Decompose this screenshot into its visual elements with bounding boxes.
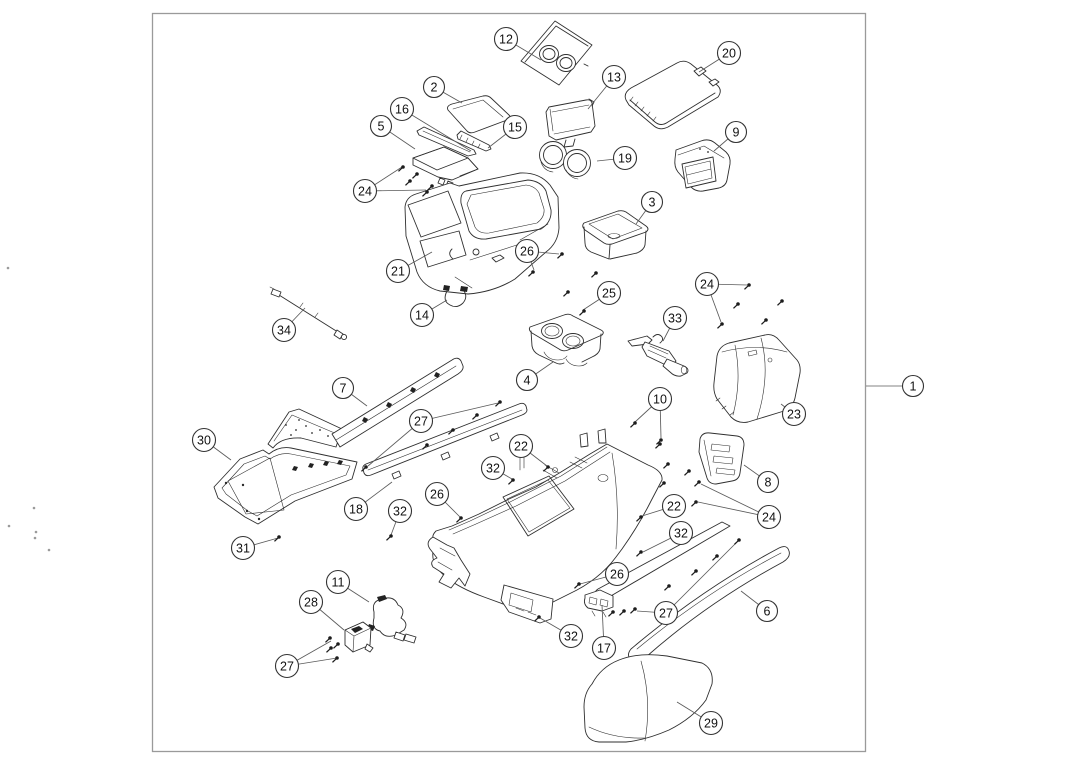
callout-28: 28: [300, 591, 323, 614]
scan-speck: [7, 267, 10, 270]
callout-22: 22: [663, 495, 686, 518]
svg-text:25: 25: [602, 287, 616, 301]
screw-icon: [718, 322, 724, 328]
callout-32: 32: [482, 457, 505, 480]
svg-text:5: 5: [378, 120, 385, 134]
callout-27: 27: [276, 655, 299, 678]
svg-text:12: 12: [499, 33, 513, 47]
screw-icon: [509, 478, 515, 484]
screw-icon: [685, 469, 691, 475]
callout-26: 26: [606, 563, 629, 586]
part-8-bracket: [699, 433, 744, 484]
callout-33: 33: [664, 307, 687, 330]
callout-22: 22: [510, 435, 533, 458]
svg-text:24: 24: [762, 511, 776, 525]
callout-25: 25: [598, 282, 621, 305]
callout-32: 32: [670, 522, 693, 545]
screw-icon: [745, 283, 751, 289]
screw-icon: [558, 252, 564, 258]
svg-text:24: 24: [358, 185, 372, 199]
part-3-storage-bin: [583, 211, 648, 259]
svg-text:27: 27: [280, 660, 294, 674]
screw-icon: [665, 584, 671, 590]
svg-text:19: 19: [618, 152, 632, 166]
svg-text:6: 6: [764, 605, 771, 619]
screw-icon: [735, 538, 741, 544]
screw-icon: [778, 299, 784, 305]
svg-text:16: 16: [395, 103, 409, 117]
screw-icon: [631, 421, 637, 427]
svg-text:22: 22: [667, 500, 681, 514]
screw-icon: [275, 535, 281, 541]
part-13-module: [546, 99, 595, 147]
screw-icon: [473, 413, 479, 419]
screw-icon: [620, 609, 626, 615]
svg-text:3: 3: [649, 196, 656, 210]
svg-text:8: 8: [765, 476, 772, 490]
screw-icon: [580, 309, 586, 315]
callout-18: 18: [345, 498, 368, 521]
svg-text:32: 32: [393, 505, 407, 519]
svg-text:34: 34: [277, 324, 291, 338]
svg-text:32: 32: [486, 462, 500, 476]
callout-1: 1: [903, 376, 924, 397]
screw-icon: [664, 462, 670, 468]
svg-text:9: 9: [733, 126, 740, 140]
callout-5: 5: [371, 116, 392, 137]
callout-9: 9: [726, 122, 747, 143]
callout-27: 27: [410, 410, 433, 433]
callout-12: 12: [495, 28, 518, 51]
part-11-wiring-harness: [367, 595, 416, 643]
callout-17: 17: [593, 637, 616, 660]
svg-text:14: 14: [415, 309, 429, 323]
svg-text:13: 13: [607, 71, 621, 85]
scan-artifacts: [7, 267, 51, 552]
svg-text:18: 18: [349, 503, 363, 517]
callout-34: 34: [273, 319, 296, 342]
callout-19: 19: [614, 147, 637, 170]
svg-text:17: 17: [597, 642, 611, 656]
callout-26: 26: [426, 483, 449, 506]
callout-4: 4: [517, 370, 538, 391]
diagram-canvas: 1221320165159192432621142533243474102327…: [0, 0, 1080, 764]
svg-text:10: 10: [653, 393, 667, 407]
svg-text:26: 26: [430, 488, 444, 502]
part-33-latch-mechanism: [628, 335, 688, 377]
screw-icon: [406, 179, 412, 185]
screw-icon: [713, 554, 719, 560]
callout-3: 3: [642, 192, 663, 213]
screw-icon: [734, 302, 740, 308]
part-9-rear-vent-trim: [675, 140, 730, 191]
svg-text:32: 32: [674, 527, 688, 541]
part-2-pad: [448, 96, 511, 133]
scan-speck: [34, 537, 37, 540]
callout-10: 10: [649, 388, 672, 411]
screw-icon: [544, 465, 550, 471]
svg-text:28: 28: [304, 596, 318, 610]
exploded-diagram: 1221320165159192432621142533243474102327…: [0, 0, 1080, 764]
svg-text:26: 26: [610, 568, 624, 582]
callout-32: 32: [560, 625, 583, 648]
scan-speck: [8, 525, 11, 528]
callout-16: 16: [391, 98, 414, 121]
svg-text:30: 30: [197, 434, 211, 448]
svg-text:15: 15: [508, 121, 522, 135]
svg-text:26: 26: [520, 245, 534, 259]
part-28-module: [345, 622, 373, 652]
screw-icon: [564, 290, 570, 296]
screw-icon: [656, 442, 662, 448]
screw-icon: [592, 271, 598, 277]
callout-29: 29: [700, 712, 723, 735]
svg-text:27: 27: [414, 415, 428, 429]
scan-speck: [35, 531, 38, 534]
callout-24: 24: [758, 506, 781, 529]
part-lower-housing: [428, 429, 662, 623]
callout-30: 30: [193, 429, 216, 452]
screw-icon: [529, 270, 535, 276]
callout-23: 23: [783, 403, 806, 426]
svg-text:7: 7: [340, 382, 347, 396]
screw-icon: [762, 318, 768, 324]
callout-20: 20: [718, 42, 741, 65]
screw-icon: [637, 550, 643, 556]
svg-text:27: 27: [659, 607, 673, 621]
callout-2: 2: [424, 77, 445, 98]
svg-text:22: 22: [514, 440, 528, 454]
svg-text:21: 21: [391, 265, 405, 279]
screw-icon: [327, 646, 333, 652]
svg-text:29: 29: [704, 717, 718, 731]
callout-11: 11: [327, 571, 350, 594]
screw-icon: [333, 656, 339, 662]
svg-text:23: 23: [787, 408, 801, 422]
part-29-rear-boot: [584, 655, 712, 742]
leader-lines: [204, 39, 913, 723]
callout-21: 21: [387, 260, 410, 283]
scan-speck: [33, 507, 36, 510]
part-30-side-panel: [214, 448, 357, 524]
callout-8: 8: [758, 472, 779, 493]
svg-text:31: 31: [236, 542, 250, 556]
part-4-cupholder-assembly: [529, 314, 603, 366]
svg-text:32: 32: [564, 630, 578, 644]
callout-26: 26: [516, 240, 539, 263]
svg-text:4: 4: [524, 374, 531, 388]
callout-31: 31: [232, 537, 255, 560]
callout-24: 24: [354, 180, 377, 203]
screw-icon: [692, 569, 698, 575]
screw-icon: [631, 607, 637, 613]
callout-27: 27: [655, 602, 678, 625]
part-20-armrest-lid: [625, 61, 720, 129]
screw-icon: [413, 172, 419, 178]
svg-text:33: 33: [668, 312, 682, 326]
part-7-side-rail: [268, 358, 463, 448]
part-12-seal-mat: [521, 21, 592, 85]
callout-14: 14: [411, 304, 434, 327]
screw-icon: [695, 480, 701, 486]
svg-text:1: 1: [910, 380, 917, 394]
screw-icon: [387, 534, 393, 540]
screw-icon: [692, 500, 698, 506]
callout-24: 24: [696, 273, 719, 296]
callout-7: 7: [333, 378, 354, 399]
callout-32: 32: [389, 500, 412, 523]
scan-speck: [48, 549, 51, 552]
callout-15: 15: [504, 116, 527, 139]
svg-text:20: 20: [722, 47, 736, 61]
callout-6: 6: [757, 601, 778, 622]
screw-icon: [609, 610, 615, 616]
svg-text:11: 11: [332, 576, 345, 590]
svg-text:2: 2: [431, 81, 438, 95]
callout-13: 13: [603, 66, 626, 89]
svg-text:24: 24: [700, 278, 714, 292]
screw-icon: [334, 642, 340, 648]
